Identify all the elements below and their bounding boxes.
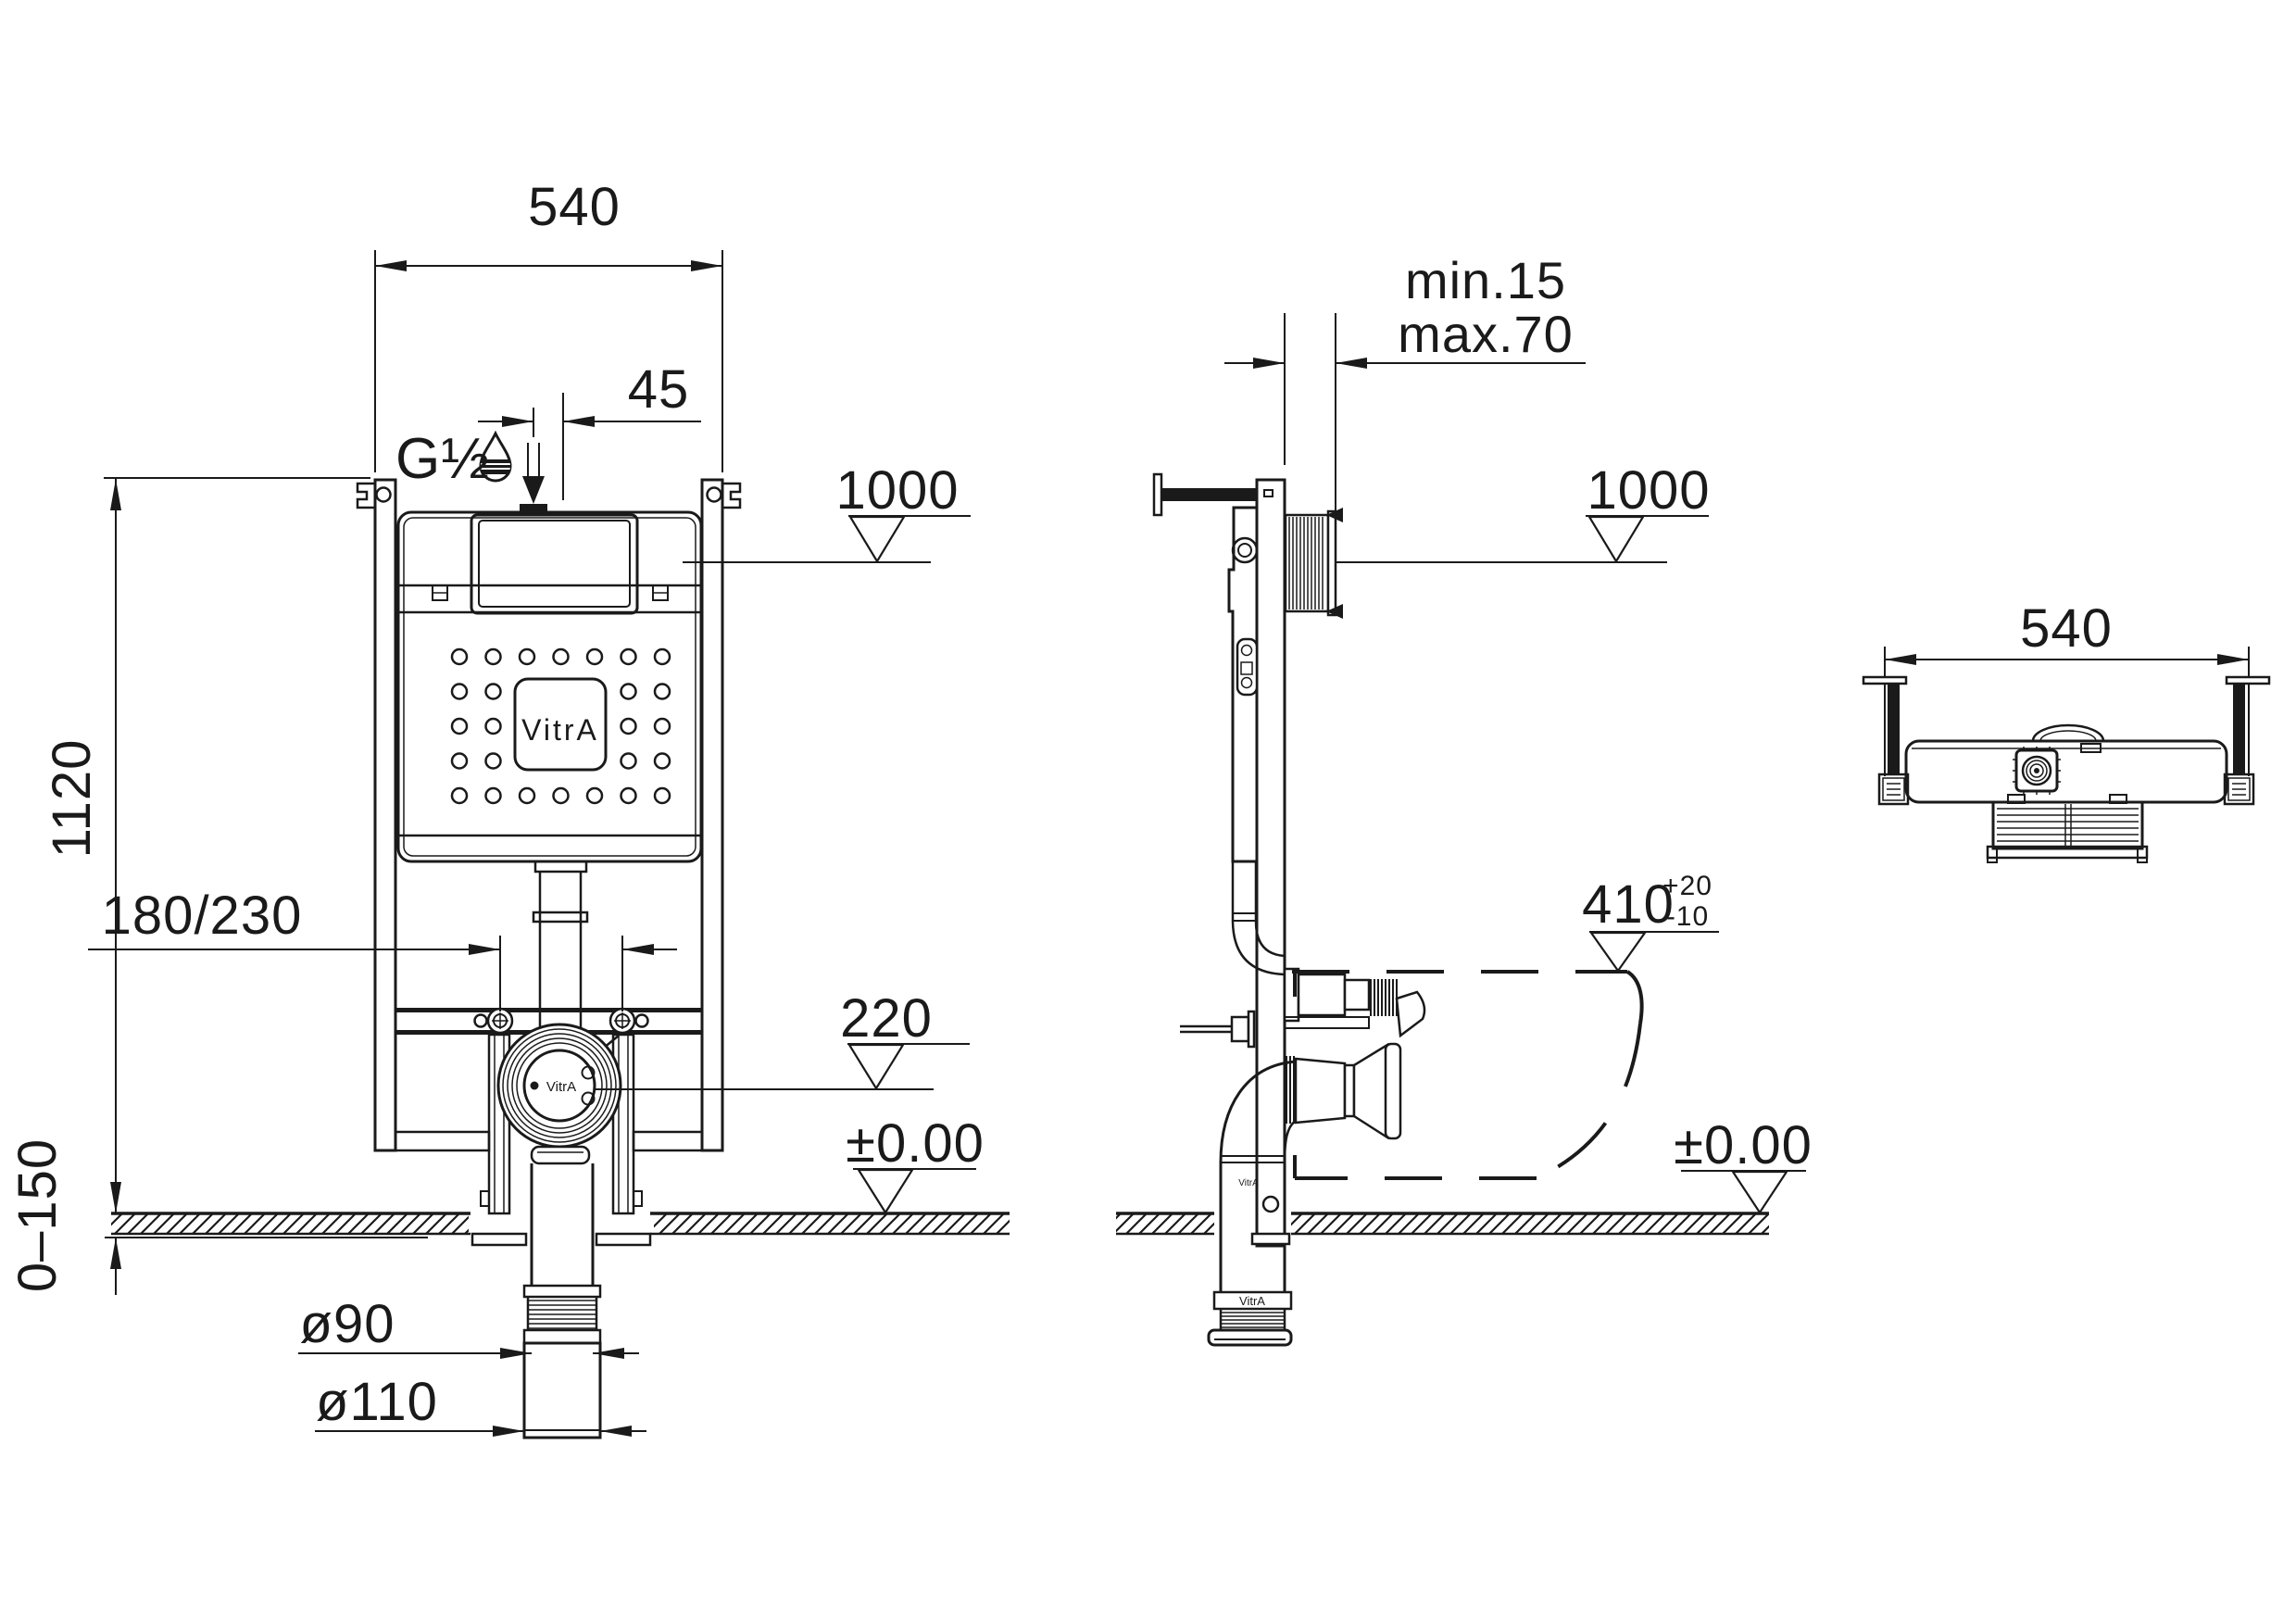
- front-view: VitrA G½ 540: [7, 177, 1010, 1438]
- flush-pipe: [533, 861, 587, 1010]
- floor-side: [1116, 1213, 1769, 1244]
- frame-rail-side: [1257, 480, 1285, 1246]
- drain-cone: [1354, 1045, 1387, 1137]
- dim-wall-distance: min.15 max.70: [1224, 251, 1586, 511]
- drain-coupling-label: VitrA: [1239, 1294, 1265, 1308]
- drain-below-floor-side: VitrA: [1209, 1292, 1291, 1345]
- pipe-small-label: VitrA: [1238, 1178, 1259, 1188]
- ribbed-protection-box: [1286, 508, 1343, 619]
- floor-front: [111, 1213, 1010, 1234]
- dim-frame-height-value: 1120: [42, 739, 102, 859]
- wall-bracket-right: [722, 484, 740, 508]
- inlet-arrow-icon: [522, 476, 545, 504]
- foot-plate-side: [1252, 1234, 1289, 1244]
- level-triangle-icon: [850, 517, 904, 561]
- foot-plate-right: [596, 1234, 650, 1245]
- wall-bracket-left: [358, 484, 375, 508]
- dim-wall-min-value: min.15: [1405, 251, 1566, 309]
- dim-bowl-projection: 410 +20 -10: [1582, 871, 1719, 971]
- rosette-tab: [532, 1147, 589, 1163]
- flush-valve-plan: [2013, 747, 2061, 795]
- cistern-plan: [1906, 725, 2227, 803]
- level-marker-zero-side: ±0.00: [1674, 1115, 1813, 1213]
- level-zero-side-value: ±0.00: [1674, 1115, 1813, 1175]
- level-triangle-icon: [859, 1170, 912, 1213]
- rosette-label: VitrA: [546, 1079, 576, 1095]
- dim-drain-dia110: ø110: [315, 1372, 646, 1437]
- inlet-thread-label: G½: [395, 427, 490, 491]
- dim-front-width-value: 540: [528, 177, 621, 237]
- dim-bolt-spacing-value: 180/230: [102, 886, 303, 946]
- access-panel: [471, 515, 637, 613]
- level-zero-front-value: ±0.00: [846, 1113, 985, 1174]
- level-marker-1000-side: 1000: [1336, 460, 1711, 562]
- dim-wall-max-value: max.70: [1398, 305, 1574, 363]
- flush-connector-cap: [1397, 992, 1424, 1036]
- top-view: 540: [1863, 598, 2269, 862]
- technical-drawing-page: VitrA G½ 540: [0, 0, 2296, 1621]
- level-1000-front-value: 1000: [835, 460, 959, 521]
- level-triangle-icon: [1733, 1172, 1787, 1213]
- flush-outlet-rosette: VitrA: [498, 1024, 621, 1163]
- level-triangle-icon: [1589, 517, 1643, 561]
- dim-drain-dia90: ø90: [298, 1294, 639, 1359]
- flush-valve-detail: [1237, 639, 1257, 695]
- dim-floor-adjust-value: 0–150: [7, 1138, 68, 1292]
- level-marker-zero-front: ±0.00: [846, 1113, 985, 1213]
- brand-logo: VitrA: [521, 713, 599, 747]
- dim-top-width-value: 540: [2020, 598, 2113, 659]
- dim-tol-minus: -10: [1666, 901, 1709, 932]
- dim-frame-height: 1120: [42, 478, 370, 1213]
- pan-bolt-side: [1180, 1026, 1232, 1032]
- level-triangle-icon: [849, 1045, 903, 1088]
- handle-dome: [2033, 725, 2103, 741]
- drain-elbow-side: VitrA: [1221, 1044, 1400, 1292]
- level-220-value: 220: [840, 988, 933, 1049]
- level-triangle-icon: [1591, 933, 1645, 971]
- water-inlet: G½: [395, 427, 555, 515]
- drain-pipe: [524, 1163, 600, 1438]
- level-marker-220: 220: [595, 988, 970, 1089]
- dim-drain-dia90-value: ø90: [300, 1294, 395, 1354]
- level-marker-1000-front: 1000: [683, 460, 971, 562]
- cistern-logo-plate: VitrA: [515, 679, 606, 770]
- foot-plate-left: [472, 1234, 526, 1245]
- level-1000-side-value: 1000: [1587, 460, 1710, 521]
- side-view: min.15 max.70 1000: [1116, 251, 1813, 1345]
- dim-bolt-spacing: 180/230: [88, 886, 677, 1012]
- dim-tol-plus: +20: [1662, 871, 1713, 901]
- dim-drain-dia110-value: ø110: [316, 1372, 438, 1432]
- cistern-profile-side: [1229, 508, 1257, 861]
- dim-inlet-offset-value: 45: [628, 359, 690, 420]
- dim-bowl-projection-value: 410: [1582, 874, 1675, 935]
- flush-elbow-side: [1180, 861, 1424, 1047]
- dim-inlet-offset: 45: [478, 359, 701, 500]
- louver-box-plan: [1988, 802, 2147, 862]
- installation-drawing: VitrA G½ 540: [0, 0, 2296, 1621]
- dim-top-width: 540: [1885, 598, 2249, 776]
- top-bracket-right: [2225, 677, 2269, 804]
